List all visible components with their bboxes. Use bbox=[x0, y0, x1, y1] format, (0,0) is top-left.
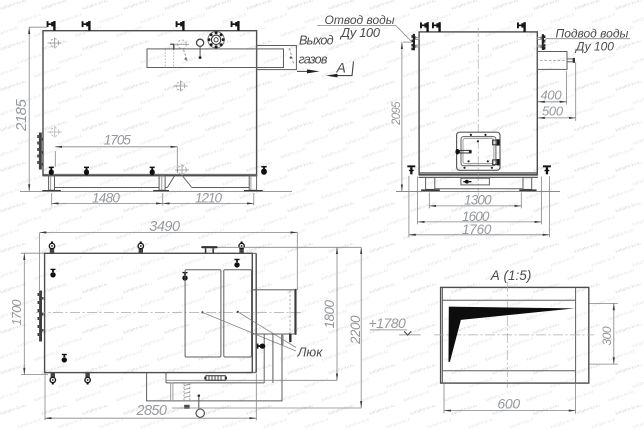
svg-text:1210: 1210 bbox=[195, 191, 223, 206]
svg-text:600: 600 bbox=[497, 396, 520, 412]
svg-text:3490: 3490 bbox=[149, 219, 180, 235]
svg-text:1800: 1800 bbox=[322, 299, 337, 328]
svg-text:+1780: +1780 bbox=[369, 315, 407, 331]
svg-text:500: 500 bbox=[542, 104, 564, 119]
svg-text:300: 300 bbox=[600, 326, 614, 345]
svg-text:Ду 100: Ду 100 bbox=[574, 39, 614, 53]
svg-text:Люк: Люк bbox=[297, 345, 324, 360]
svg-text:2095: 2095 bbox=[391, 101, 403, 126]
svg-text:1300: 1300 bbox=[464, 193, 492, 208]
svg-text:1760: 1760 bbox=[462, 222, 492, 237]
svg-text:1700: 1700 bbox=[10, 299, 24, 325]
svg-text:Выход: Выход bbox=[299, 34, 334, 48]
svg-text:2850: 2850 bbox=[136, 403, 167, 419]
svg-text:газов: газов bbox=[299, 52, 328, 66]
svg-text:2185: 2185 bbox=[13, 98, 30, 132]
svg-text:1480: 1480 bbox=[92, 191, 120, 206]
svg-text:2200: 2200 bbox=[348, 315, 363, 345]
svg-text:А (1:5): А (1:5) bbox=[490, 268, 532, 283]
svg-text:400: 400 bbox=[541, 88, 563, 103]
svg-text:1705: 1705 bbox=[104, 133, 132, 148]
svg-text:А: А bbox=[336, 60, 346, 76]
svg-text:Ду 100: Ду 100 bbox=[339, 25, 381, 40]
svg-text:Подвод воды: Подвод воды bbox=[556, 26, 629, 40]
